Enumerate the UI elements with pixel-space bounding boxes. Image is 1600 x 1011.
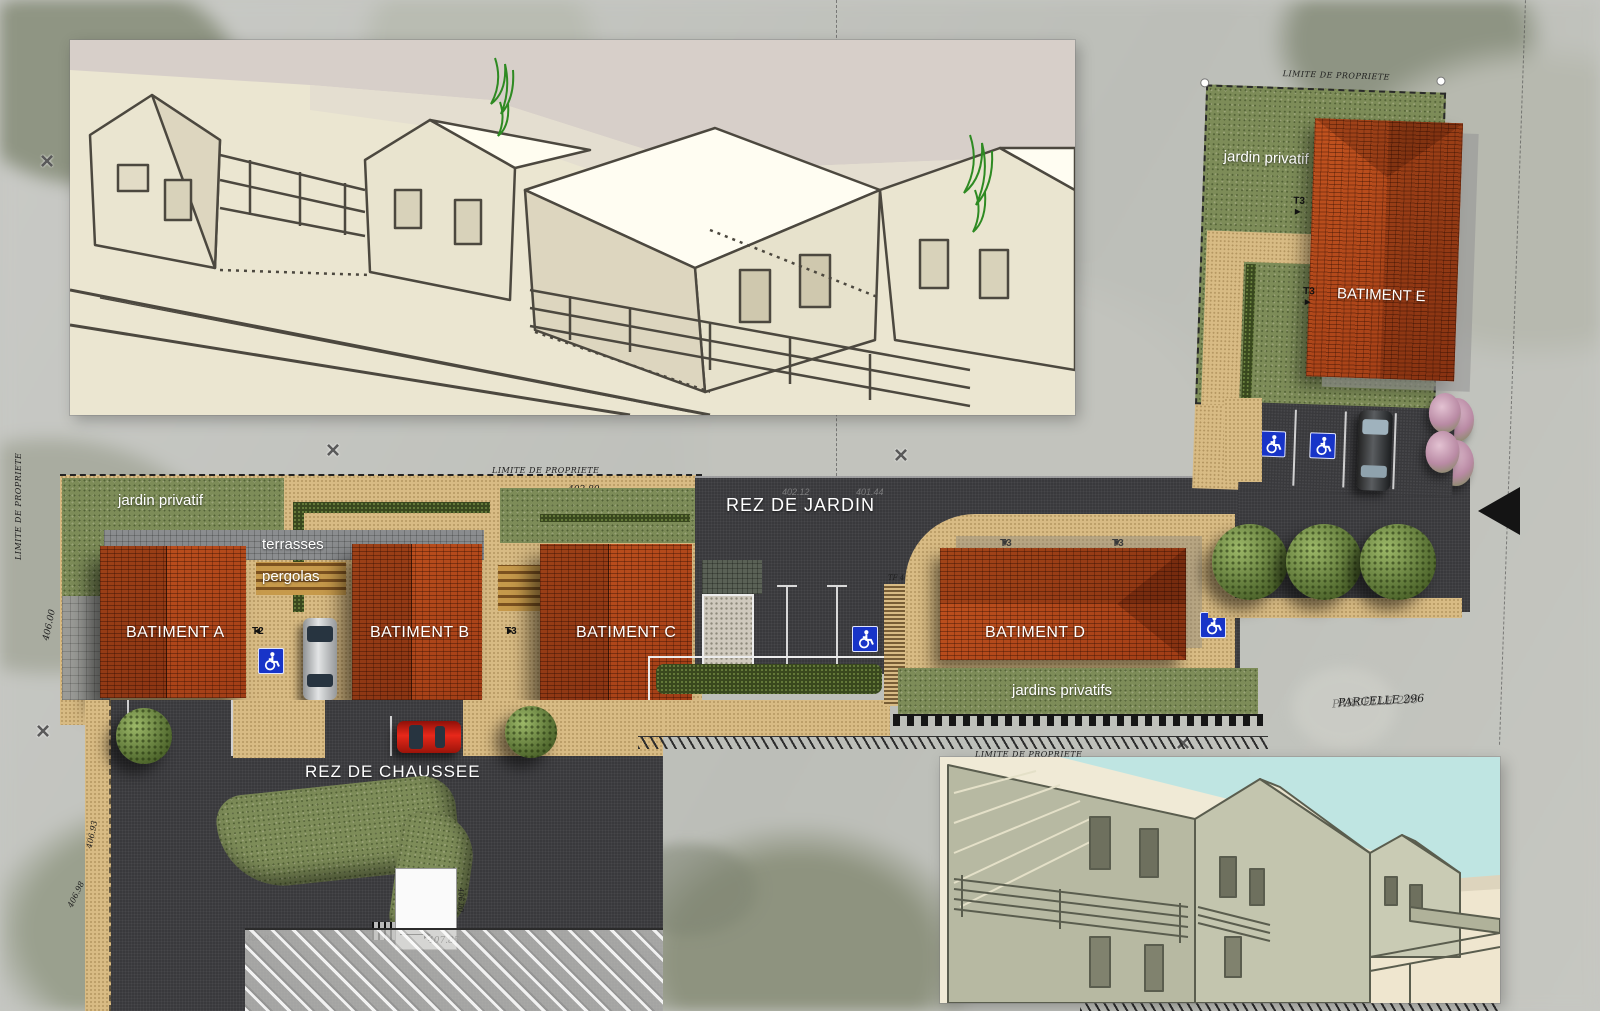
parking-line (231, 700, 233, 756)
building-e-label: BATIMENT E (1337, 285, 1426, 305)
boundary-hatch (638, 736, 1268, 749)
terraces-label: terrasses (262, 536, 324, 553)
building-a-roof (100, 546, 246, 698)
handicap-parking-icon (852, 626, 878, 652)
handicap-parking-icon (258, 648, 284, 674)
car-windshield (409, 725, 423, 749)
entry-walk (233, 700, 325, 758)
roof-shade (100, 546, 166, 698)
car-rear-window (435, 726, 445, 748)
west-sidewalk (85, 700, 111, 1011)
roof-ridge (608, 544, 609, 702)
boundary-label-west: LIMITE DE PROPRIETE (14, 453, 23, 560)
arrow-right-icon: ► (1293, 207, 1303, 218)
tree (1286, 524, 1362, 600)
tree (505, 706, 557, 758)
perspective-sketch-inset-top (70, 40, 1075, 415)
sketch-houses-drawing (70, 40, 1075, 415)
boundary-label-top: LIMITE DE PROPRIETE (492, 466, 599, 475)
flowering-shrub (1428, 392, 1461, 433)
site-plan-canvas: × × × × × jardin privatif LIMITE DE PROP… (0, 0, 1600, 1011)
tree (116, 708, 172, 764)
building-a-label: BATIMENT A (126, 624, 225, 642)
building-d-roof (940, 548, 1186, 660)
hedge-strip-south (656, 664, 882, 694)
pergolas-label: pergolas (262, 568, 320, 585)
property-boundary-top (60, 474, 702, 476)
survey-cross-icon: × (326, 437, 340, 465)
tree (1360, 524, 1436, 600)
sketch-facade-drawing (940, 757, 1500, 1003)
car-windshield (1362, 419, 1389, 435)
existing-building-hatch (245, 928, 663, 1011)
dimension-402-12: 402.12 (782, 487, 810, 497)
parked-car-dark (1356, 410, 1393, 491)
path-connector (1224, 398, 1262, 482)
south-walk (640, 700, 890, 736)
handicap-parking-icon (1309, 432, 1336, 459)
dimension-401-44: 401.44 (856, 487, 884, 497)
private-garden-e-label: jardin privatif (1223, 148, 1309, 168)
arrow-right-icon: ► (505, 626, 515, 637)
parked-car-red (397, 721, 461, 753)
roof-ridge (411, 544, 412, 700)
parked-car-silver (303, 618, 337, 700)
survey-cross-icon: × (40, 148, 54, 176)
car-rear-window (307, 674, 333, 687)
hedge-strip (300, 502, 490, 513)
handicap-parking-icon (1259, 430, 1286, 457)
dimension-406-00-slab: 406.00 (456, 888, 464, 913)
east-sidewalk (1208, 598, 1462, 618)
building-b-label: BATIMENT B (370, 624, 470, 642)
parking-line (390, 716, 392, 756)
survey-point (1436, 76, 1445, 85)
survey-cross-icon: × (36, 718, 50, 746)
survey-cross-icon: × (894, 442, 908, 470)
building-d-label: BATIMENT D (985, 624, 1085, 642)
arrow-right-icon: ► (1302, 297, 1312, 308)
private-garden-label: jardin privatif (118, 492, 203, 509)
building-b-roof (352, 544, 482, 700)
flowering-shrub (1425, 430, 1460, 473)
tree (1212, 524, 1288, 600)
building-c-label: BATIMENT C (576, 624, 676, 642)
roof-ridge (166, 546, 167, 698)
rez-de-jardin-label: REZ DE JARDIN (726, 495, 875, 516)
car-windshield (307, 626, 333, 642)
building-e-roof (1306, 118, 1463, 381)
entry-walk-east (463, 700, 663, 756)
roof-shade (540, 544, 608, 702)
boundary-crenel (893, 714, 1263, 726)
car-rear-window (1361, 465, 1387, 478)
roof-shade (352, 544, 411, 700)
hedge-strip (540, 514, 690, 522)
perspective-sketch-inset-bottom (940, 757, 1500, 1003)
private-gardens-label: jardins privatifs (1012, 682, 1112, 699)
boundary-label-e: LIMITE DE PROPRIETE (1282, 69, 1390, 82)
dark-paved-patio (702, 560, 762, 594)
